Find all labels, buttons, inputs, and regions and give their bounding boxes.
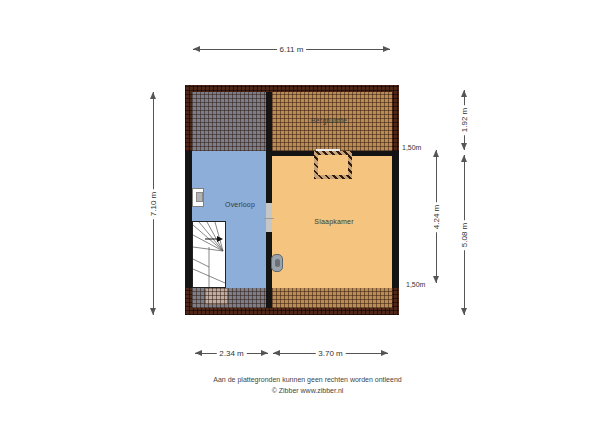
low-headroom-hatch-bottom xyxy=(192,288,392,308)
dimension-label: 7.10 m xyxy=(149,188,158,218)
arrow-down-icon xyxy=(461,308,467,315)
arrow-left-icon xyxy=(273,350,280,356)
wall-unit-icon xyxy=(192,188,204,207)
dimension-bottom-left-room: 2.34 m xyxy=(195,349,268,358)
dimension-label: 4.24 m xyxy=(432,201,441,231)
arrow-up-icon xyxy=(461,90,467,97)
arrow-down-icon xyxy=(433,276,439,283)
door-handle-icon xyxy=(271,254,283,272)
arrow-up-icon xyxy=(461,155,467,162)
floorplan: Bergruimte Overloop Slaapkamer xyxy=(185,85,399,315)
footer-disclaimer: Aan de plattegronden kunnen geen rechten… xyxy=(0,376,615,383)
dimension-top-width: 6.11 m xyxy=(193,45,390,54)
arrow-left-icon xyxy=(195,350,202,356)
arrow-right-icon xyxy=(261,350,268,356)
arrow-up-icon xyxy=(433,150,439,157)
dimension-right-lower: 5.08 m xyxy=(460,155,469,315)
dimension-label: 3.70 m xyxy=(315,349,345,358)
arrow-left-icon xyxy=(193,46,200,52)
wall-right xyxy=(392,151,399,288)
arrow-right-icon xyxy=(383,46,390,52)
height-marker-bottom: 1,50m xyxy=(406,281,425,288)
dimension-label: 6.11 m xyxy=(277,45,307,54)
staircase-icon xyxy=(192,221,226,288)
dimension-left-height: 7.10 m xyxy=(149,92,158,315)
height-marker-top: 1,50m xyxy=(402,144,421,151)
dimension-right-inner: 4.24 m xyxy=(432,150,441,283)
dimension-label: 2.34 m xyxy=(216,349,246,358)
arrow-up-icon xyxy=(150,92,156,99)
chimney-inner xyxy=(318,155,348,175)
chimney-shaft-icon xyxy=(314,151,352,179)
dimension-bottom-right-room: 3.70 m xyxy=(273,349,388,358)
room-label-bergruimte: Bergruimte xyxy=(311,117,347,124)
room-label-slaapkamer: Slaapkamer xyxy=(314,218,353,225)
arrow-down-icon xyxy=(150,308,156,315)
arrow-right-icon xyxy=(381,350,388,356)
door-opening xyxy=(266,203,272,232)
floorplan-page: Bergruimte Overloop Slaapkamer 6.11 m 7.… xyxy=(0,0,615,436)
dimension-right-upper: 1.92 m xyxy=(460,90,469,150)
room-label-overloop: Overloop xyxy=(225,201,255,208)
arrow-down-icon xyxy=(461,143,467,150)
dimension-label: 1.92 m xyxy=(460,105,469,135)
low-headroom-hatch-top xyxy=(192,92,392,151)
footer-credit: © Zibber www.zibber.nl xyxy=(0,387,615,394)
wall-left xyxy=(185,151,192,288)
dimension-label: 5.08 m xyxy=(460,220,469,250)
wall-center xyxy=(266,92,272,308)
